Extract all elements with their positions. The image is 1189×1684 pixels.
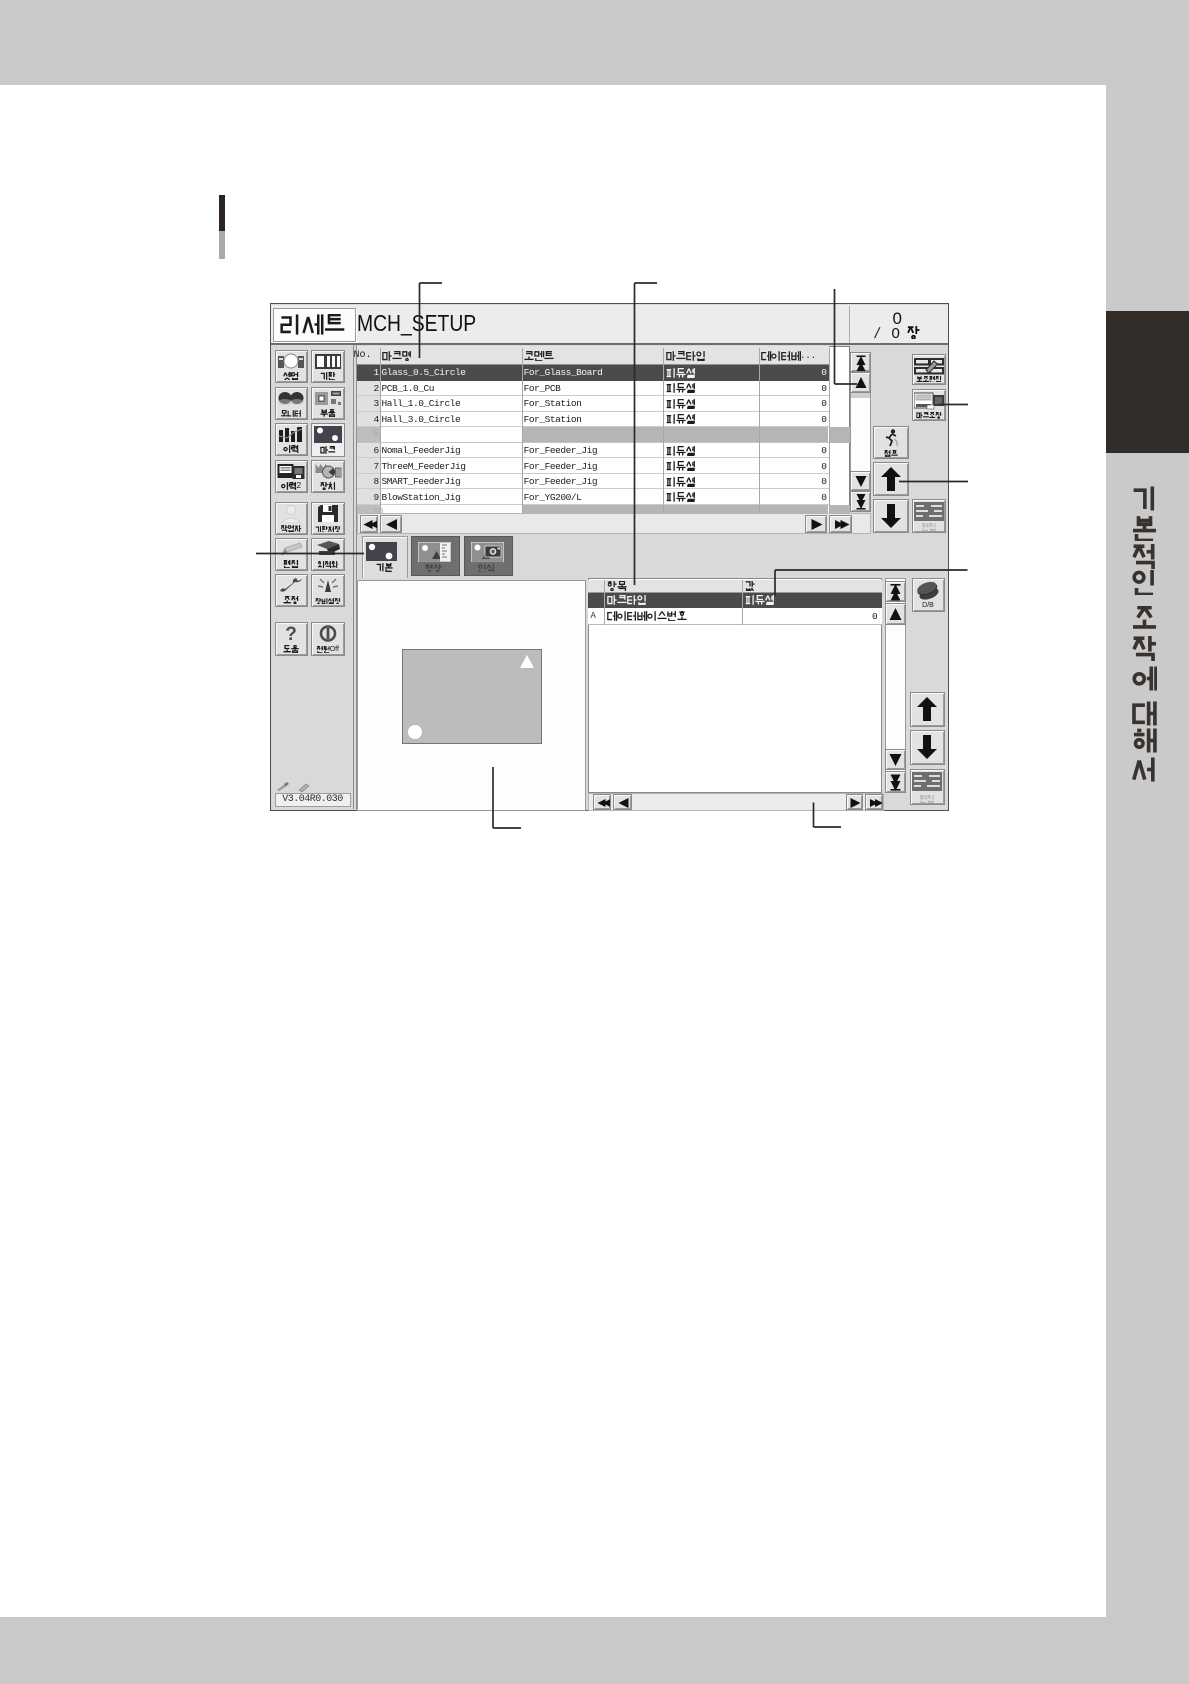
svg-text:?: ? [285, 625, 297, 642]
